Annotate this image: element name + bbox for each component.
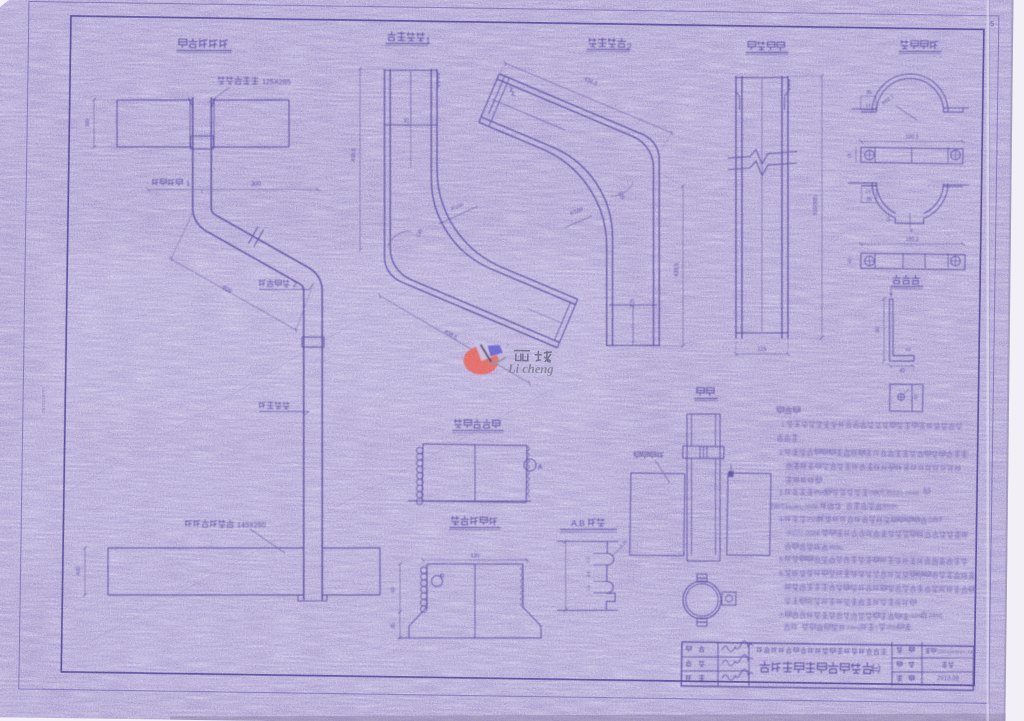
svg-text:20221-2006: 20221-2006 [786,530,820,538]
svg-text:GB/T58361-2006: GB/T58361-2006 [770,503,819,511]
svg-text:6mm.: 6mm. [883,503,899,510]
svg-text:35: 35 [866,90,872,96]
svg-text:438.5: 438.5 [351,148,357,162]
svg-text:40: 40 [847,258,853,264]
svg-text:35: 35 [866,197,872,203]
svg-text:B: B [440,573,444,580]
svg-text:125: 125 [404,117,410,126]
svg-text:1: 1 [186,181,190,188]
svg-text:5: 5 [990,21,994,28]
svg-text:135: 135 [470,553,479,559]
svg-text:20m: 20m [887,624,899,631]
svg-text:1.5: 1.5 [586,584,591,591]
svg-text:3.: 3. [779,490,785,497]
svg-text:125X285: 125X285 [262,77,291,86]
svg-text:60: 60 [875,327,881,333]
svg-text:1: 1 [425,36,430,46]
svg-text:32m: 32m [910,612,922,619]
svg-text:2013.08: 2013.08 [937,676,959,682]
svg-text:35: 35 [391,623,397,629]
svg-text:14: 14 [865,189,871,195]
svg-text:40: 40 [391,587,397,593]
svg-text:GB/T: GB/T [928,516,943,523]
svg-text:10: 10 [886,216,891,222]
svg-text:15: 15 [905,347,911,352]
svg-text:™: ™ [505,343,510,348]
svg-text:400: 400 [76,567,82,576]
svg-text:GB/T 20221-2006: GB/T 20221-2006 [869,489,920,497]
svg-text:125: 125 [630,299,636,308]
svg-text:5.: 5. [779,557,785,564]
svg-text:125: 125 [757,347,766,353]
svg-text:4.: 4. [779,517,785,524]
svg-text:15: 15 [847,153,852,159]
svg-text:14: 14 [865,103,871,109]
svg-text:2.5: 2.5 [586,556,591,563]
svg-text:24m(: 24m( [846,624,861,631]
svg-text:24m(: 24m( [928,612,943,619]
svg-text:Li cheng: Li cheng [507,361,554,376]
svg-text:2.: 2. [779,450,785,457]
svg-text:A: A [538,464,543,471]
svg-text:A.B: A.B [571,518,585,528]
svg-text:( ): ( ) [871,663,881,674]
svg-text:2: 2 [626,42,631,52]
svg-text:438.5: 438.5 [674,263,680,277]
svg-text:(2013)8388A-73: (2013)8388A-73 [937,649,973,656]
svg-text:): ) [876,624,878,631]
svg-text:2: 2 [293,282,297,289]
svg-text:180.2: 180.2 [906,237,919,243]
svg-text:380: 380 [85,119,91,128]
svg-text:180.2: 180.2 [906,134,919,140]
svg-text:910(905): 910(905) [813,194,819,215]
svg-text:6: 6 [910,228,913,234]
svg-text:3.5: 3.5 [586,570,591,577]
svg-text:1.: 1. [781,422,787,429]
svg-text:40: 40 [899,368,905,374]
svg-text:300: 300 [251,182,262,188]
svg-text:80%.: 80%. [829,544,844,551]
svg-text:7.: 7. [779,613,785,620]
svg-text:2670118791: 2670118791 [41,386,47,413]
svg-text:145X280: 145X280 [237,520,266,529]
svg-text:45: 45 [913,394,919,400]
svg-text:6.: 6. [779,571,785,578]
